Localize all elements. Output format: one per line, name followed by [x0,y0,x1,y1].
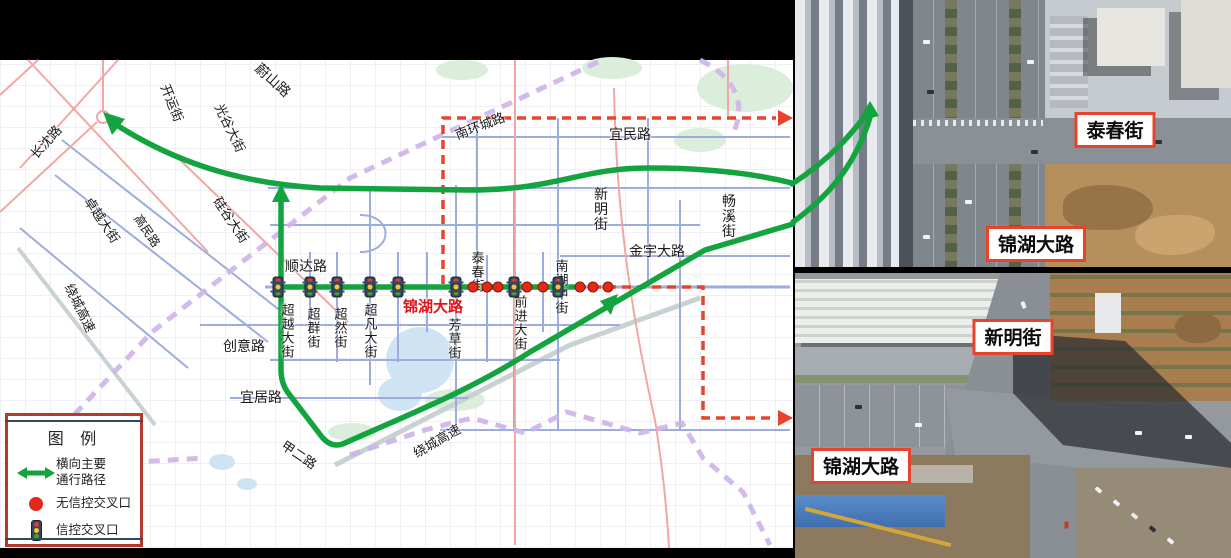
legend-item-label: 信控交叉口 [56,523,119,539]
site-shed [1095,293,1121,333]
buildings-left [795,0,913,270]
street-name-callout: 新明街 [972,319,1053,355]
street-name-callout: 泰春街 [1074,112,1155,148]
legend-items: 横向主要 通行路径无信控交叉口信控交叉口 [14,457,136,541]
lot-bottom-right [1075,468,1231,558]
legend-title: 图 例 [14,425,136,449]
street-name-callout: 锦湖大路 [986,226,1086,262]
legend: 图 例 横向主要 通行路径无信控交叉口信控交叉口 [5,413,143,547]
legend-item-label: 无信控交叉口 [56,496,131,512]
crosswalk [913,120,1043,126]
traffic-light-icon [16,520,56,541]
red-dot-icon [16,497,56,511]
parking-lot [1050,16,1088,108]
legend-item: 无信控交叉口 [16,496,136,512]
legend-item: 信控交叉口 [16,520,136,541]
building [1097,8,1165,66]
aerial-photo-xinming [795,273,1231,558]
street-name-callout: 锦湖大路 [811,448,911,484]
dirt-patch [1063,185,1153,230]
building [1181,0,1231,88]
traffic-light-icon [31,520,42,541]
building-shadow [899,0,913,270]
dirt-patch [1175,313,1221,343]
legend-item: 横向主要 通行路径 [16,457,136,488]
double-arrow-icon [16,464,56,482]
legend-item-label: 横向主要 通行路径 [56,457,106,488]
